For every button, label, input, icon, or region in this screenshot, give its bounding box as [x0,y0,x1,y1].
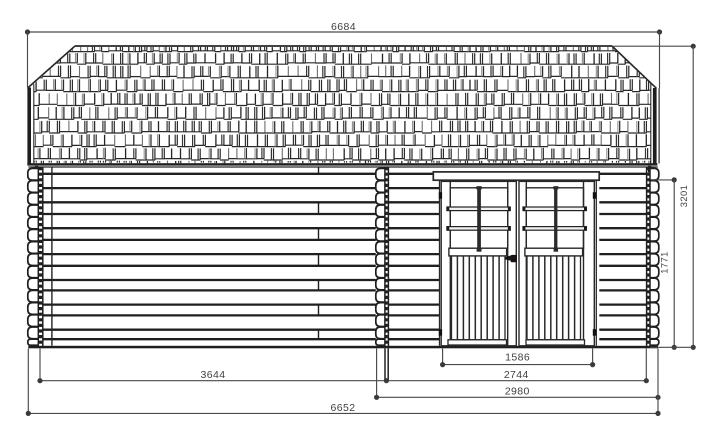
svg-text:1771: 1771 [659,251,670,273]
svg-text:1586: 1586 [505,352,530,364]
svg-text:2744: 2744 [504,369,529,381]
svg-text:2980: 2980 [505,385,530,397]
svg-text:6652: 6652 [331,402,356,414]
svg-text:3644: 3644 [201,369,226,381]
svg-text:3201: 3201 [678,185,689,207]
svg-text:6684: 6684 [331,21,356,33]
